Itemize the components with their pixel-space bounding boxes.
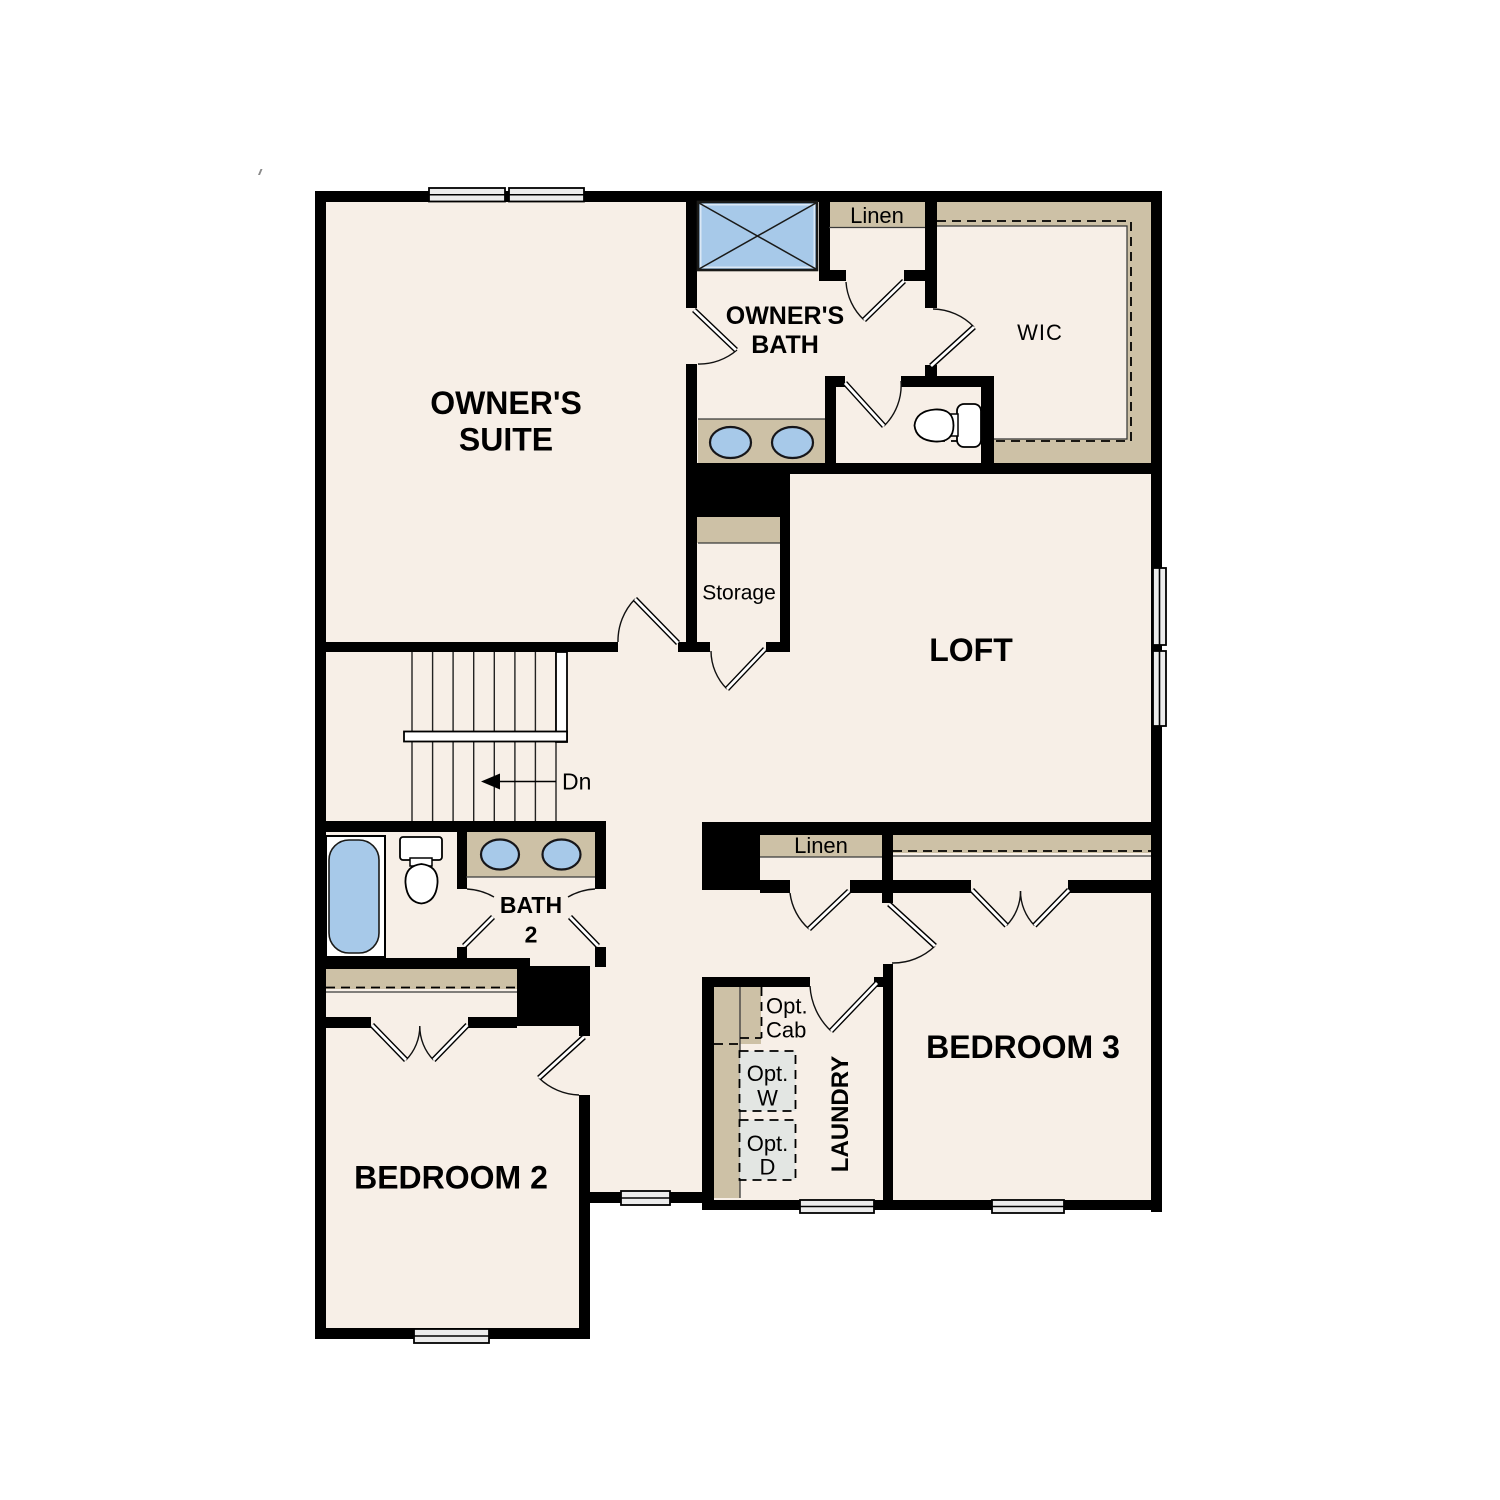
svg-text:LOFT: LOFT <box>929 632 1013 668</box>
svg-text:W: W <box>757 1086 778 1111</box>
svg-text:Opt.: Opt. <box>766 994 808 1019</box>
svg-text:WIC: WIC <box>1017 320 1063 345</box>
svg-text:2: 2 <box>525 922 538 948</box>
svg-text:D: D <box>760 1155 776 1180</box>
svg-text:LAUNDRY: LAUNDRY <box>827 1056 854 1172</box>
svg-text:Dn: Dn <box>562 769 591 795</box>
svg-text:Opt.: Opt. <box>747 1061 789 1086</box>
svg-text:Cab: Cab <box>766 1018 806 1043</box>
svg-text:BEDROOM 3: BEDROOM 3 <box>926 1029 1120 1065</box>
svg-text:OWNER'S: OWNER'S <box>430 385 582 421</box>
svg-text:BATH: BATH <box>751 331 819 359</box>
svg-text:BATH: BATH <box>500 892 562 918</box>
svg-text:Opt.: Opt. <box>747 1131 789 1156</box>
svg-text:Linen: Linen <box>850 203 904 228</box>
svg-text:BEDROOM 2: BEDROOM 2 <box>354 1160 548 1196</box>
svg-text:Linen: Linen <box>794 833 848 858</box>
svg-text:SUITE: SUITE <box>459 422 553 458</box>
svg-text:Storage: Storage <box>702 582 776 605</box>
svg-text:OWNER'S: OWNER'S <box>726 302 844 330</box>
